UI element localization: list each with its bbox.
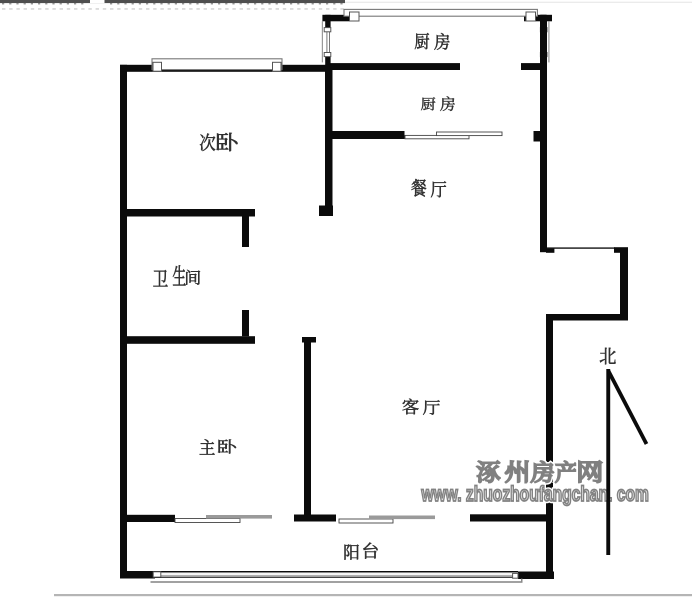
- svg-text:www. zhuozhoufangchan. com: www. zhuozhoufangchan. com: [421, 483, 649, 506]
